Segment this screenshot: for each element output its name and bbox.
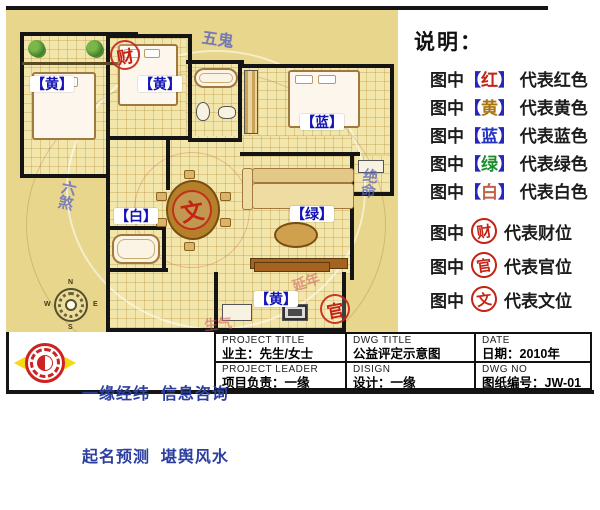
- compass-east: E: [93, 301, 98, 308]
- toilet-icon: [196, 102, 210, 121]
- room-label-hallway: 【白】: [114, 208, 158, 224]
- sink-icon: [218, 106, 236, 119]
- room-label-bedroom-left: 【黄】: [30, 76, 74, 92]
- logo-text-line2: 起名预测 堪舆风水: [82, 447, 229, 468]
- wall: [20, 32, 24, 178]
- cell-project-leader: PROJECT LEADER 项目负责：一缘: [216, 361, 345, 388]
- wall: [390, 154, 394, 196]
- cell-value: 日期：2010年: [482, 347, 584, 361]
- legend-color-char: 绿: [481, 155, 498, 174]
- wall: [188, 138, 242, 142]
- chair-icon: [184, 170, 195, 179]
- cell-project-title: PROJECT TITLE 业主：先生/女士: [216, 334, 345, 361]
- plant-icon: [86, 40, 103, 57]
- bagua-emblem-icon: [14, 340, 76, 386]
- cell-design: DISIGN 设计：一缘: [345, 361, 474, 388]
- wall: [238, 64, 242, 142]
- wardrobe-icon: [244, 70, 258, 134]
- legend-row-green: 图中【绿】 代表绿色: [430, 150, 588, 175]
- legend-row-official: 图中 官 代表官位: [430, 252, 572, 278]
- drawing-sheet: N S W E 五鬼 六煞 绝命 延年 生气 【黄】 【黄】 【蓝】 【白】 【…: [0, 0, 600, 400]
- wall: [106, 268, 168, 272]
- legend-row-literary: 图中 文 代表文位: [430, 286, 572, 312]
- company-logo: 一缘经纬 信息咨询 起名预测 堪舆风水: [10, 336, 210, 390]
- room-label-living: 【绿】: [290, 206, 334, 222]
- cell-label: DISIGN: [353, 364, 468, 376]
- coffee-table-icon: [274, 222, 318, 248]
- direction-label: 绝命: [356, 167, 381, 200]
- sofa-armrest-icon: [242, 168, 253, 210]
- room-label-bedroom-mid: 【黄】: [138, 76, 182, 92]
- compass-west: W: [44, 301, 51, 308]
- wall: [186, 60, 244, 64]
- legend-row-red: 图中【红】 代表红色: [430, 66, 588, 91]
- legend-row-wealth: 图中 财 代表财位: [430, 218, 572, 244]
- wall: [106, 34, 192, 38]
- legend-color-char: 红: [481, 71, 498, 90]
- wall: [166, 136, 170, 190]
- room-label-master: 【蓝】: [300, 114, 344, 130]
- logo-text-line1: 一缘经纬 信息咨询: [82, 384, 229, 405]
- direction-label: 六煞: [53, 178, 80, 212]
- chair-icon: [220, 192, 231, 201]
- legend-row-yellow: 图中【黄】 代表黄色: [430, 94, 588, 119]
- legend-title: 说明：: [414, 26, 483, 56]
- cell-date: DATE 日期：2010年: [474, 334, 590, 361]
- cell-dwg-title: DWG TITLE 公益评定示意图: [345, 334, 474, 361]
- legend-color-char: 白: [481, 183, 498, 202]
- logo-text: 一缘经纬 信息咨询 起名预测 堪舆风水: [82, 342, 229, 510]
- sofa-icon: [252, 168, 354, 183]
- cell-label: PROJECT TITLE: [222, 335, 339, 347]
- literary-stamp-icon: 文: [469, 284, 498, 313]
- room-label-kitchen: 【黄】: [254, 291, 298, 307]
- wall: [162, 226, 166, 272]
- direction-label: 生气: [203, 313, 233, 332]
- wealth-stamp-icon: 财: [469, 216, 498, 245]
- cell-value: 图纸编号：JW-01: [482, 376, 584, 388]
- wall: [106, 32, 110, 332]
- cell-value: 设计：一缘: [353, 376, 468, 388]
- wall: [240, 64, 394, 68]
- direction-label: 五鬼: [200, 24, 235, 52]
- plant-icon: [28, 40, 45, 57]
- cell-value: 项目负责：一缘: [222, 376, 339, 388]
- wall: [20, 174, 110, 178]
- wall: [240, 152, 360, 156]
- cell-value: 公益评定示意图: [353, 347, 468, 361]
- compass-north: N: [68, 279, 73, 286]
- wall: [390, 64, 394, 158]
- cell-dwg-no: DWG NO 图纸编号：JW-01: [474, 361, 590, 388]
- chair-icon: [156, 192, 167, 201]
- official-stamp-icon: 官: [469, 250, 498, 279]
- floor-plan: N S W E 五鬼 六煞 绝命 延年 生气 【黄】 【黄】 【蓝】 【白】 【…: [6, 10, 398, 332]
- compass-rose: N S W E: [50, 284, 92, 326]
- cell-label: DWG NO: [482, 364, 584, 376]
- cell-label: DATE: [482, 335, 584, 347]
- cell-label: PROJECT LEADER: [222, 364, 339, 376]
- bathtub-icon: [194, 68, 238, 88]
- legend-panel: 说明： 图中【红】 代表红色 图中【黄】 代表黄色 图中【蓝】 代表蓝色 图中【…: [400, 10, 596, 332]
- bathtub-icon: [112, 234, 160, 264]
- cell-label: DWG TITLE: [353, 335, 468, 347]
- kitchen-counter-icon: [254, 262, 330, 272]
- legend-color-char: 黄: [481, 99, 498, 118]
- compass-south: S: [68, 324, 73, 331]
- title-block: PROJECT TITLE 业主：先生/女士 DWG TITLE 公益评定示意图…: [214, 332, 592, 390]
- legend-color-char: 蓝: [481, 127, 498, 146]
- legend-row-blue: 图中【蓝】 代表蓝色: [430, 122, 588, 147]
- wall: [188, 60, 192, 142]
- cell-value: 业主：先生/女士: [222, 347, 339, 361]
- wall: [106, 136, 192, 140]
- chair-icon: [184, 242, 195, 251]
- legend-row-white: 图中【白】 代表白色: [430, 178, 588, 203]
- chair-icon: [220, 218, 231, 227]
